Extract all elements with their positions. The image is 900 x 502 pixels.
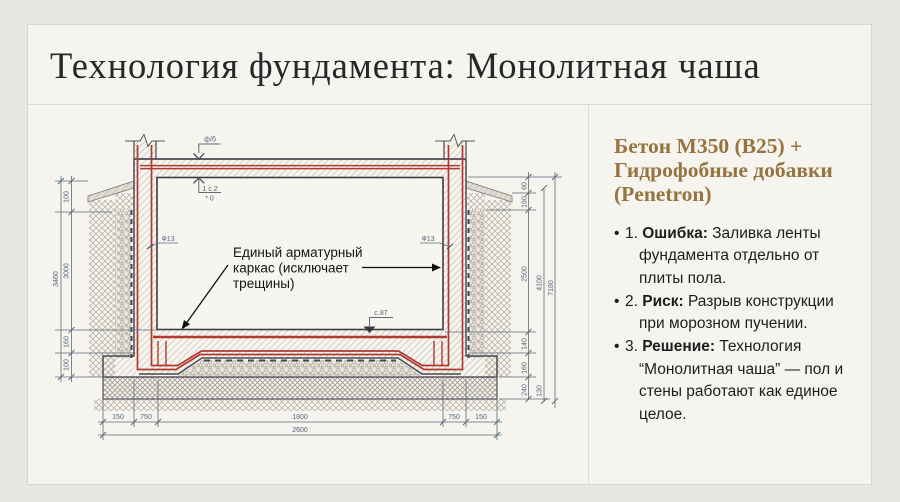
svg-text:160: 160 xyxy=(522,362,529,374)
svg-text:трещины): трещины) xyxy=(233,276,295,291)
svg-text:750: 750 xyxy=(140,414,152,421)
svg-text:ф/б: ф/б xyxy=(204,136,216,144)
svg-text:130: 130 xyxy=(537,385,544,397)
svg-text:2500: 2500 xyxy=(522,266,529,282)
svg-text:2600: 2600 xyxy=(292,427,308,434)
svg-text:100: 100 xyxy=(64,191,71,203)
svg-text:4100: 4100 xyxy=(537,275,544,291)
svg-text:150: 150 xyxy=(475,414,487,421)
svg-text:Единый арматурный: Единый арматурный xyxy=(233,245,363,260)
svg-text:3460: 3460 xyxy=(53,271,60,287)
svg-text:750: 750 xyxy=(448,414,460,421)
svg-text:Ф13: Ф13 xyxy=(421,236,434,243)
svg-text:каркас (исключает: каркас (исключает xyxy=(233,261,349,276)
svg-text:1 с.2: 1 с.2 xyxy=(202,186,217,193)
svg-text:190: 190 xyxy=(522,196,529,208)
svg-text:с.87: с.87 xyxy=(374,310,387,317)
svg-text:240: 240 xyxy=(522,384,529,396)
svg-text:60: 60 xyxy=(522,182,529,190)
svg-text:100: 100 xyxy=(64,359,71,371)
svg-text:* 0: * 0 xyxy=(205,196,214,203)
svg-text:140: 140 xyxy=(522,338,529,350)
svg-text:150: 150 xyxy=(112,414,124,421)
svg-text:1800: 1800 xyxy=(292,414,308,421)
svg-text:Ф13: Ф13 xyxy=(161,236,174,243)
svg-text:3000: 3000 xyxy=(64,263,71,279)
svg-text:160: 160 xyxy=(64,336,71,348)
svg-text:7180: 7180 xyxy=(548,280,555,296)
